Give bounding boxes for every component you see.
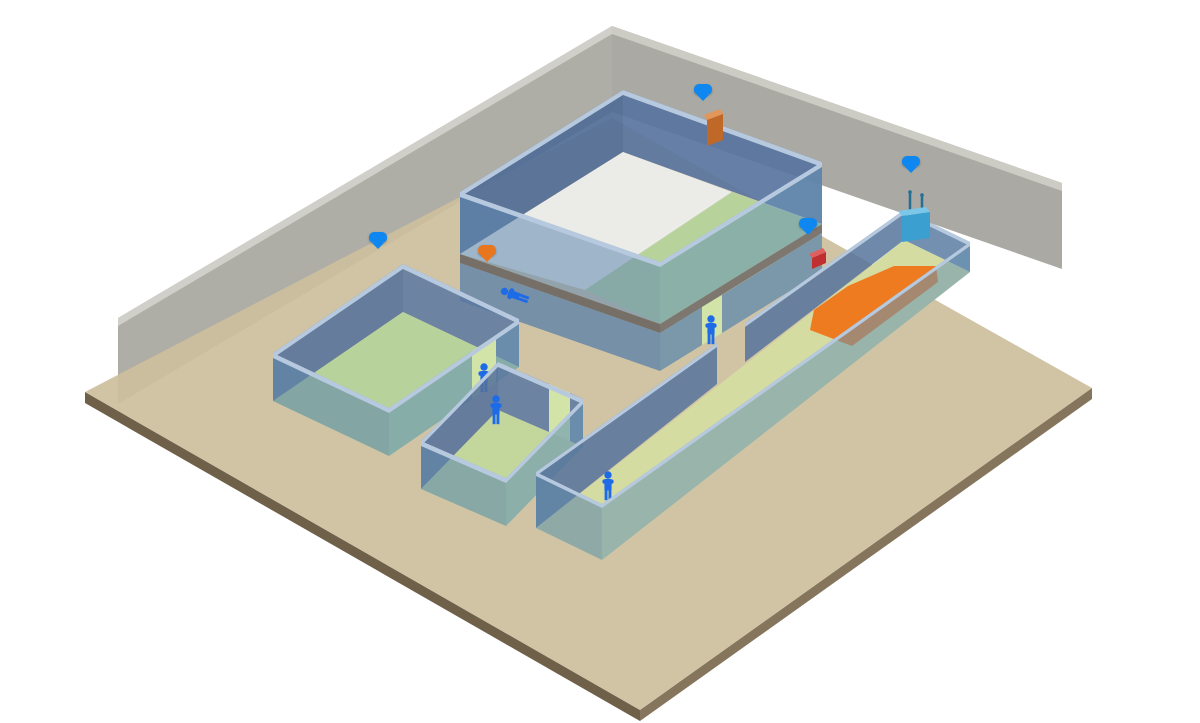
badge-smart-alarm [799, 218, 817, 229]
badge-sos [478, 245, 496, 256]
isometric-positioning-diagram [0, 0, 1200, 723]
badge-base-station [902, 156, 920, 167]
badge-anchor [369, 232, 387, 243]
badge-exciter [694, 84, 712, 95]
